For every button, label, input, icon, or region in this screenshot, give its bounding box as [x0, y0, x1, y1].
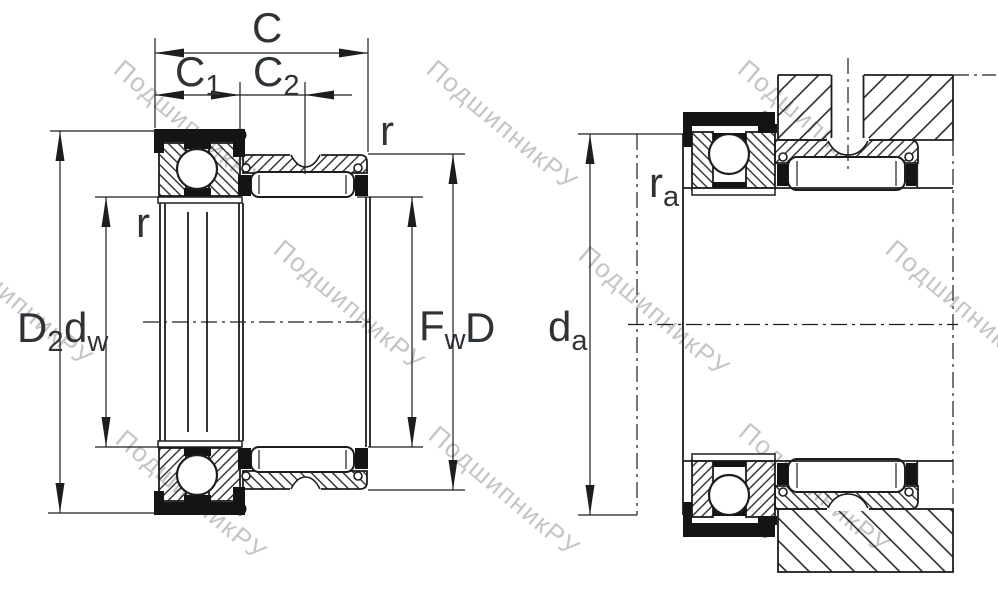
dim-label-C2: C2 [253, 48, 299, 102]
bearing-technical-drawing: ПодшипникРУ ПодшипникРУ ПодшипникРУ Подш… [0, 0, 998, 596]
housing-top [778, 74, 953, 141]
watermark-text: ПодшипникРУ [573, 240, 736, 383]
left-view-cross-section: C C1 C2 D2 dw [17, 4, 495, 516]
dim-label-D2: D2 [17, 304, 63, 358]
right-view-mounting: da ra [548, 58, 996, 572]
dim-label-C1: C1 [175, 48, 221, 102]
drawing-canvas: ПодшипникРУ ПодшипникРУ ПодшипникРУ Подш… [0, 0, 998, 596]
dim-label-dw: dw [64, 304, 109, 358]
watermark-text: ПодшипникРУ [423, 420, 586, 563]
radius-label-ra: ra [649, 159, 680, 213]
dim-label-D: D [465, 304, 495, 351]
watermark-text: ПодшипникРУ [421, 54, 584, 197]
radius-label-r-left: r [136, 199, 150, 246]
dim-label-da: da [548, 303, 588, 357]
housing-bottom [778, 509, 953, 572]
watermark-text: ПодшипникРУ [880, 234, 998, 377]
dim-label-C: C [252, 4, 282, 51]
radius-label-r-top: r [380, 107, 394, 154]
dim-label-Fw: Fw [419, 302, 467, 356]
watermark-text: ПодшипникРУ [268, 234, 431, 377]
